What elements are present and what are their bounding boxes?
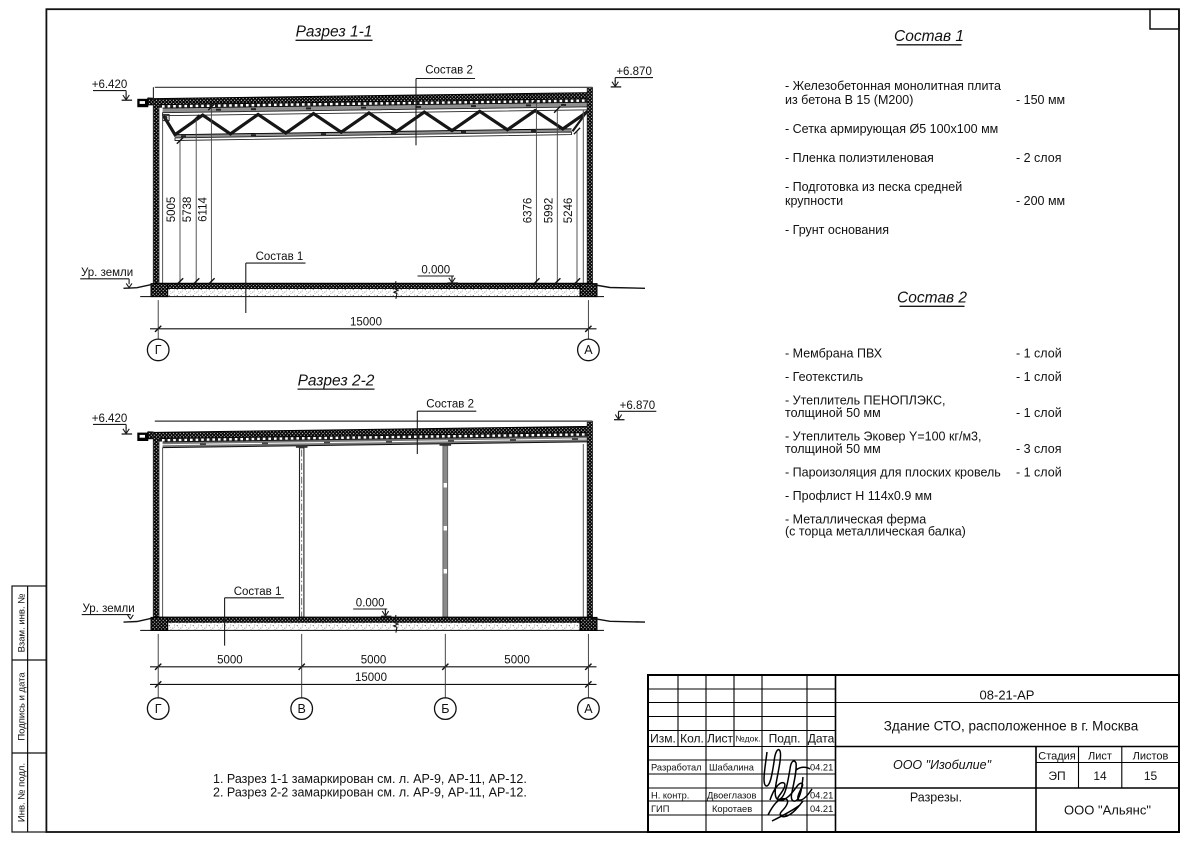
svg-text:5000: 5000 [504, 654, 530, 666]
svg-text:Разработал: Разработал [651, 762, 702, 772]
svg-text:Разрез 1-1: Разрез 1-1 [296, 24, 373, 41]
svg-text:08-21-АР: 08-21-АР [980, 688, 1035, 703]
svg-text:крупности: крупности [785, 194, 843, 208]
svg-text:5000: 5000 [217, 654, 243, 666]
svg-text:Взам. инв. №: Взам. инв. № [17, 594, 28, 653]
svg-text:Состав 1: Состав 1 [256, 251, 304, 263]
svg-text:Ур. земли: Ур. земли [83, 603, 135, 615]
svg-text:Коротаев: Коротаев [712, 804, 752, 814]
svg-text:Подпись и дата: Подпись и дата [17, 672, 28, 741]
svg-text:Состав 1: Состав 1 [894, 28, 964, 45]
svg-text:0.000: 0.000 [356, 598, 385, 610]
svg-text:Н. контр.: Н. контр. [651, 790, 689, 800]
svg-text:ООО "Альянс": ООО "Альянс" [1064, 803, 1151, 818]
svg-text:5005: 5005 [166, 197, 178, 223]
svg-text:- Профлист Н 114х0.9 мм: - Профлист Н 114х0.9 мм [785, 489, 932, 503]
svg-text:Кол.: Кол. [680, 731, 704, 745]
svg-text:Лист: Лист [707, 731, 734, 745]
svg-text:В: В [298, 702, 306, 716]
svg-text:- Пароизоляция для плоских кро: - Пароизоляция для плоских кровель [785, 466, 1001, 480]
svg-text:Стадия: Стадия [1038, 750, 1076, 762]
svg-text:Состав 1: Состав 1 [234, 586, 282, 598]
svg-text:Разрез 2-2: Разрез 2-2 [298, 372, 375, 389]
svg-text:04.21: 04.21 [810, 790, 833, 800]
svg-text:Состав 2: Состав 2 [425, 64, 473, 76]
svg-text:- Сетка армирующая Ø5 100х100: - Сетка армирующая Ø5 100х100 мм [785, 122, 998, 136]
svg-text:из бетона В 15 (М200): из бетона В 15 (М200) [785, 93, 913, 107]
svg-text:Лист: Лист [1088, 750, 1112, 762]
svg-text:- 2 слоя: - 2 слоя [1016, 151, 1061, 165]
svg-text:- 1 слой: - 1 слой [1016, 370, 1062, 384]
svg-text:1. Разрез 1-1 замаркирован см.: 1. Разрез 1-1 замаркирован см. л. АР-9, … [213, 772, 527, 786]
svg-text:04.21: 04.21 [810, 762, 833, 772]
svg-text:ГИП: ГИП [651, 804, 669, 814]
svg-text:Состав 2: Состав 2 [426, 398, 474, 410]
svg-text:6114: 6114 [197, 197, 209, 222]
svg-text:+6.870: +6.870 [620, 400, 656, 412]
svg-text:толщиной 50 мм: толщиной 50 мм [785, 442, 881, 456]
svg-text:15000: 15000 [350, 316, 382, 328]
svg-text:Г: Г [155, 702, 162, 716]
svg-text:А: А [584, 702, 593, 716]
svg-text:5246: 5246 [563, 198, 575, 224]
svg-text:- 1 слой: - 1 слой [1016, 347, 1062, 361]
svg-text:Подп.: Подп. [769, 731, 801, 745]
svg-text:2. Разрез 2-2 замаркирован см.: 2. Разрез 2-2 замаркирован см. л. АР-9, … [213, 786, 527, 800]
svg-text:толщиной 50 мм: толщиной 50 мм [785, 406, 881, 420]
svg-text:Шабалина: Шабалина [709, 762, 755, 772]
svg-text:5992: 5992 [543, 198, 555, 224]
svg-text:- Грунт основания: - Грунт основания [785, 223, 889, 237]
svg-text:- 1 слой: - 1 слой [1016, 406, 1062, 420]
svg-text:15000: 15000 [355, 672, 387, 684]
svg-text:15: 15 [1144, 769, 1158, 783]
svg-text:6376: 6376 [522, 198, 534, 224]
svg-text:- Мембрана ПВХ: - Мембрана ПВХ [785, 347, 883, 361]
svg-text:04.21: 04.21 [810, 804, 833, 814]
svg-text:Инв. № подл.: Инв. № подл. [17, 763, 28, 822]
svg-text:- 200 мм: - 200 мм [1016, 194, 1065, 208]
svg-text:Листов: Листов [1133, 750, 1169, 762]
svg-text:- Железобетонная монолитная п: - Железобетонная монолитная плита [785, 79, 1001, 93]
svg-text:+6.420: +6.420 [92, 79, 128, 91]
svg-text:14: 14 [1093, 769, 1107, 783]
svg-text:+6.870: +6.870 [616, 66, 652, 78]
svg-text:- 1 слой: - 1 слой [1016, 466, 1062, 480]
svg-text:Разрезы.: Разрезы. [910, 791, 962, 805]
svg-text:- Подготовка из песка средней: - Подготовка из песка средней [785, 180, 962, 194]
svg-text:- 3 слоя: - 3 слоя [1016, 442, 1061, 456]
svg-text:Двоеглазов: Двоеглазов [707, 790, 756, 800]
svg-text:ЭП: ЭП [1048, 769, 1065, 783]
svg-text:А: А [584, 343, 593, 357]
svg-text:Г: Г [155, 343, 162, 357]
svg-text:- Геотекстиль: - Геотекстиль [785, 370, 863, 384]
svg-text:0.000: 0.000 [421, 265, 450, 277]
svg-text:Б: Б [441, 702, 449, 716]
svg-text:5738: 5738 [182, 197, 194, 223]
svg-text:5000: 5000 [361, 654, 387, 666]
svg-text:(с торца металлическая балка): (с торца металлическая балка) [785, 525, 966, 539]
svg-text:Изм.: Изм. [650, 731, 676, 745]
svg-text:Здание СТО, расположенное в г.: Здание СТО, расположенное в г. Москва [884, 719, 1139, 734]
svg-text:+6.420: +6.420 [92, 413, 128, 425]
svg-text:Состав 2: Состав 2 [897, 290, 967, 307]
svg-text:- Пленка полиэтиленовая: - Пленка полиэтиленовая [785, 151, 934, 165]
svg-text:ООО "Изобилие": ООО "Изобилие" [893, 758, 992, 772]
svg-text:Дата: Дата [808, 731, 835, 745]
svg-text:- 150 мм: - 150 мм [1016, 93, 1065, 107]
svg-text:№док.: №док. [736, 734, 761, 744]
svg-text:Ур. земли: Ур. земли [81, 267, 133, 279]
